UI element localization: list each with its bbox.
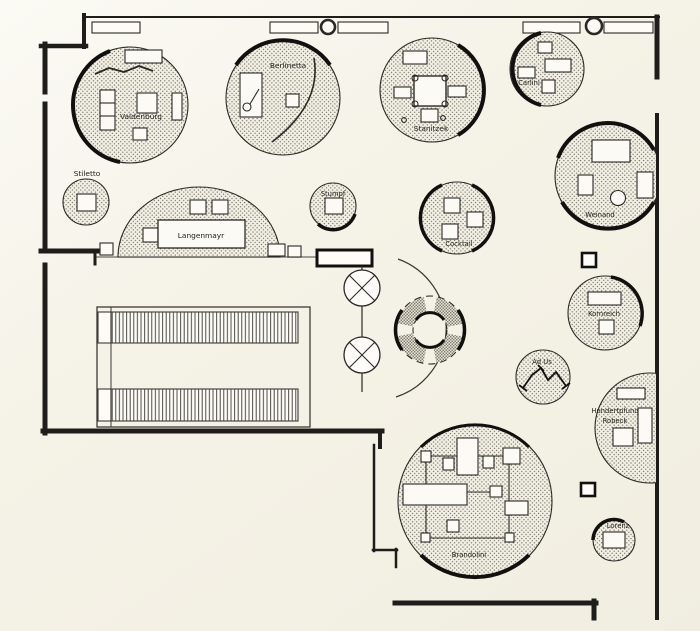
booth-ad-us-label: Ad Us — [532, 358, 552, 366]
escalator-treads-2 — [111, 389, 298, 421]
wall-vent-4 — [523, 22, 580, 33]
booth-kornreich: Kornreich — [568, 276, 642, 350]
top-wall-fixtures — [92, 18, 653, 34]
booth-brandolini: Brandolini — [398, 424, 552, 578]
booth-stanitzek-label: Stanitzek — [414, 124, 449, 133]
booth-berlinetta-label: Berlinetta — [270, 61, 306, 70]
entrance-core — [317, 250, 465, 397]
booth-brandolini-label: Brandolini — [452, 551, 486, 559]
booth-hundertpfund: Hundertpfund Robeck — [591, 373, 700, 483]
wall-vent-3 — [338, 22, 388, 33]
booth-valdenburg: Valdenburg — [72, 47, 188, 163]
floor-plan-drawing: Valdenburg Berlinetta Stanitzek — [0, 0, 700, 631]
booth-weinand: Weinand — [555, 123, 661, 229]
booth-langenmayr: Langenmayr — [100, 187, 301, 257]
booth-cocktail: Cocktail — [420, 182, 493, 254]
booth-stanitzek: Stanitzek — [380, 38, 484, 142]
booth-cocktail-label: Cocktail — [445, 240, 472, 248]
wall-vent-1 — [92, 22, 140, 33]
column-square-2 — [581, 483, 595, 496]
booth-carlini-label: Carlini — [518, 79, 540, 87]
booth-weinand-label: Weinand — [585, 211, 615, 219]
ring-outer-dashed — [396, 296, 464, 364]
floor-plan-page: Valdenburg Berlinetta Stanitzek — [0, 0, 700, 631]
escalator-landing-2 — [98, 389, 111, 421]
stiletto-table — [77, 194, 96, 211]
lorenz-table — [603, 532, 625, 548]
ceiling-port-icon-2 — [586, 18, 602, 34]
structural-columns — [344, 266, 380, 392]
double-door — [317, 250, 372, 266]
booth-stumpf: Stumpf — [310, 183, 356, 230]
door-swing-arc — [396, 259, 446, 397]
booth-kornreich-label: Kornreich — [588, 310, 620, 318]
booth-stumpf-label: Stumpf — [321, 190, 346, 198]
ceiling-port-icon — [321, 20, 335, 34]
booth-stiletto-label: Stiletto — [74, 169, 101, 178]
escalators — [97, 307, 310, 427]
stumpf-table — [325, 198, 343, 214]
wall-vent-5 — [604, 22, 653, 33]
booth-berlinetta: Berlinetta — [226, 40, 340, 155]
booth-valdenburg-label: Valdenburg — [120, 112, 162, 121]
column-square-1 — [582, 253, 596, 267]
booth-hundertpfund-label-2: Robeck — [603, 417, 628, 425]
booth-ad-us: Ad Us — [516, 350, 570, 404]
booth-langenmayr-label: Langenmayr — [178, 231, 225, 240]
escalator-treads-1 — [111, 312, 298, 343]
booth-lorenz-label: Lorenz — [607, 522, 630, 530]
ring-feature — [395, 296, 464, 364]
booth-hundertpfund-label-1: Hundertpfund — [591, 407, 638, 415]
booth-stiletto: Stiletto — [63, 169, 109, 225]
booth-lorenz: Lorenz — [593, 519, 635, 561]
booth-carlini: Carlini — [510, 32, 584, 106]
wall-vent-2 — [270, 22, 318, 33]
escalator-landing-1 — [98, 312, 111, 343]
